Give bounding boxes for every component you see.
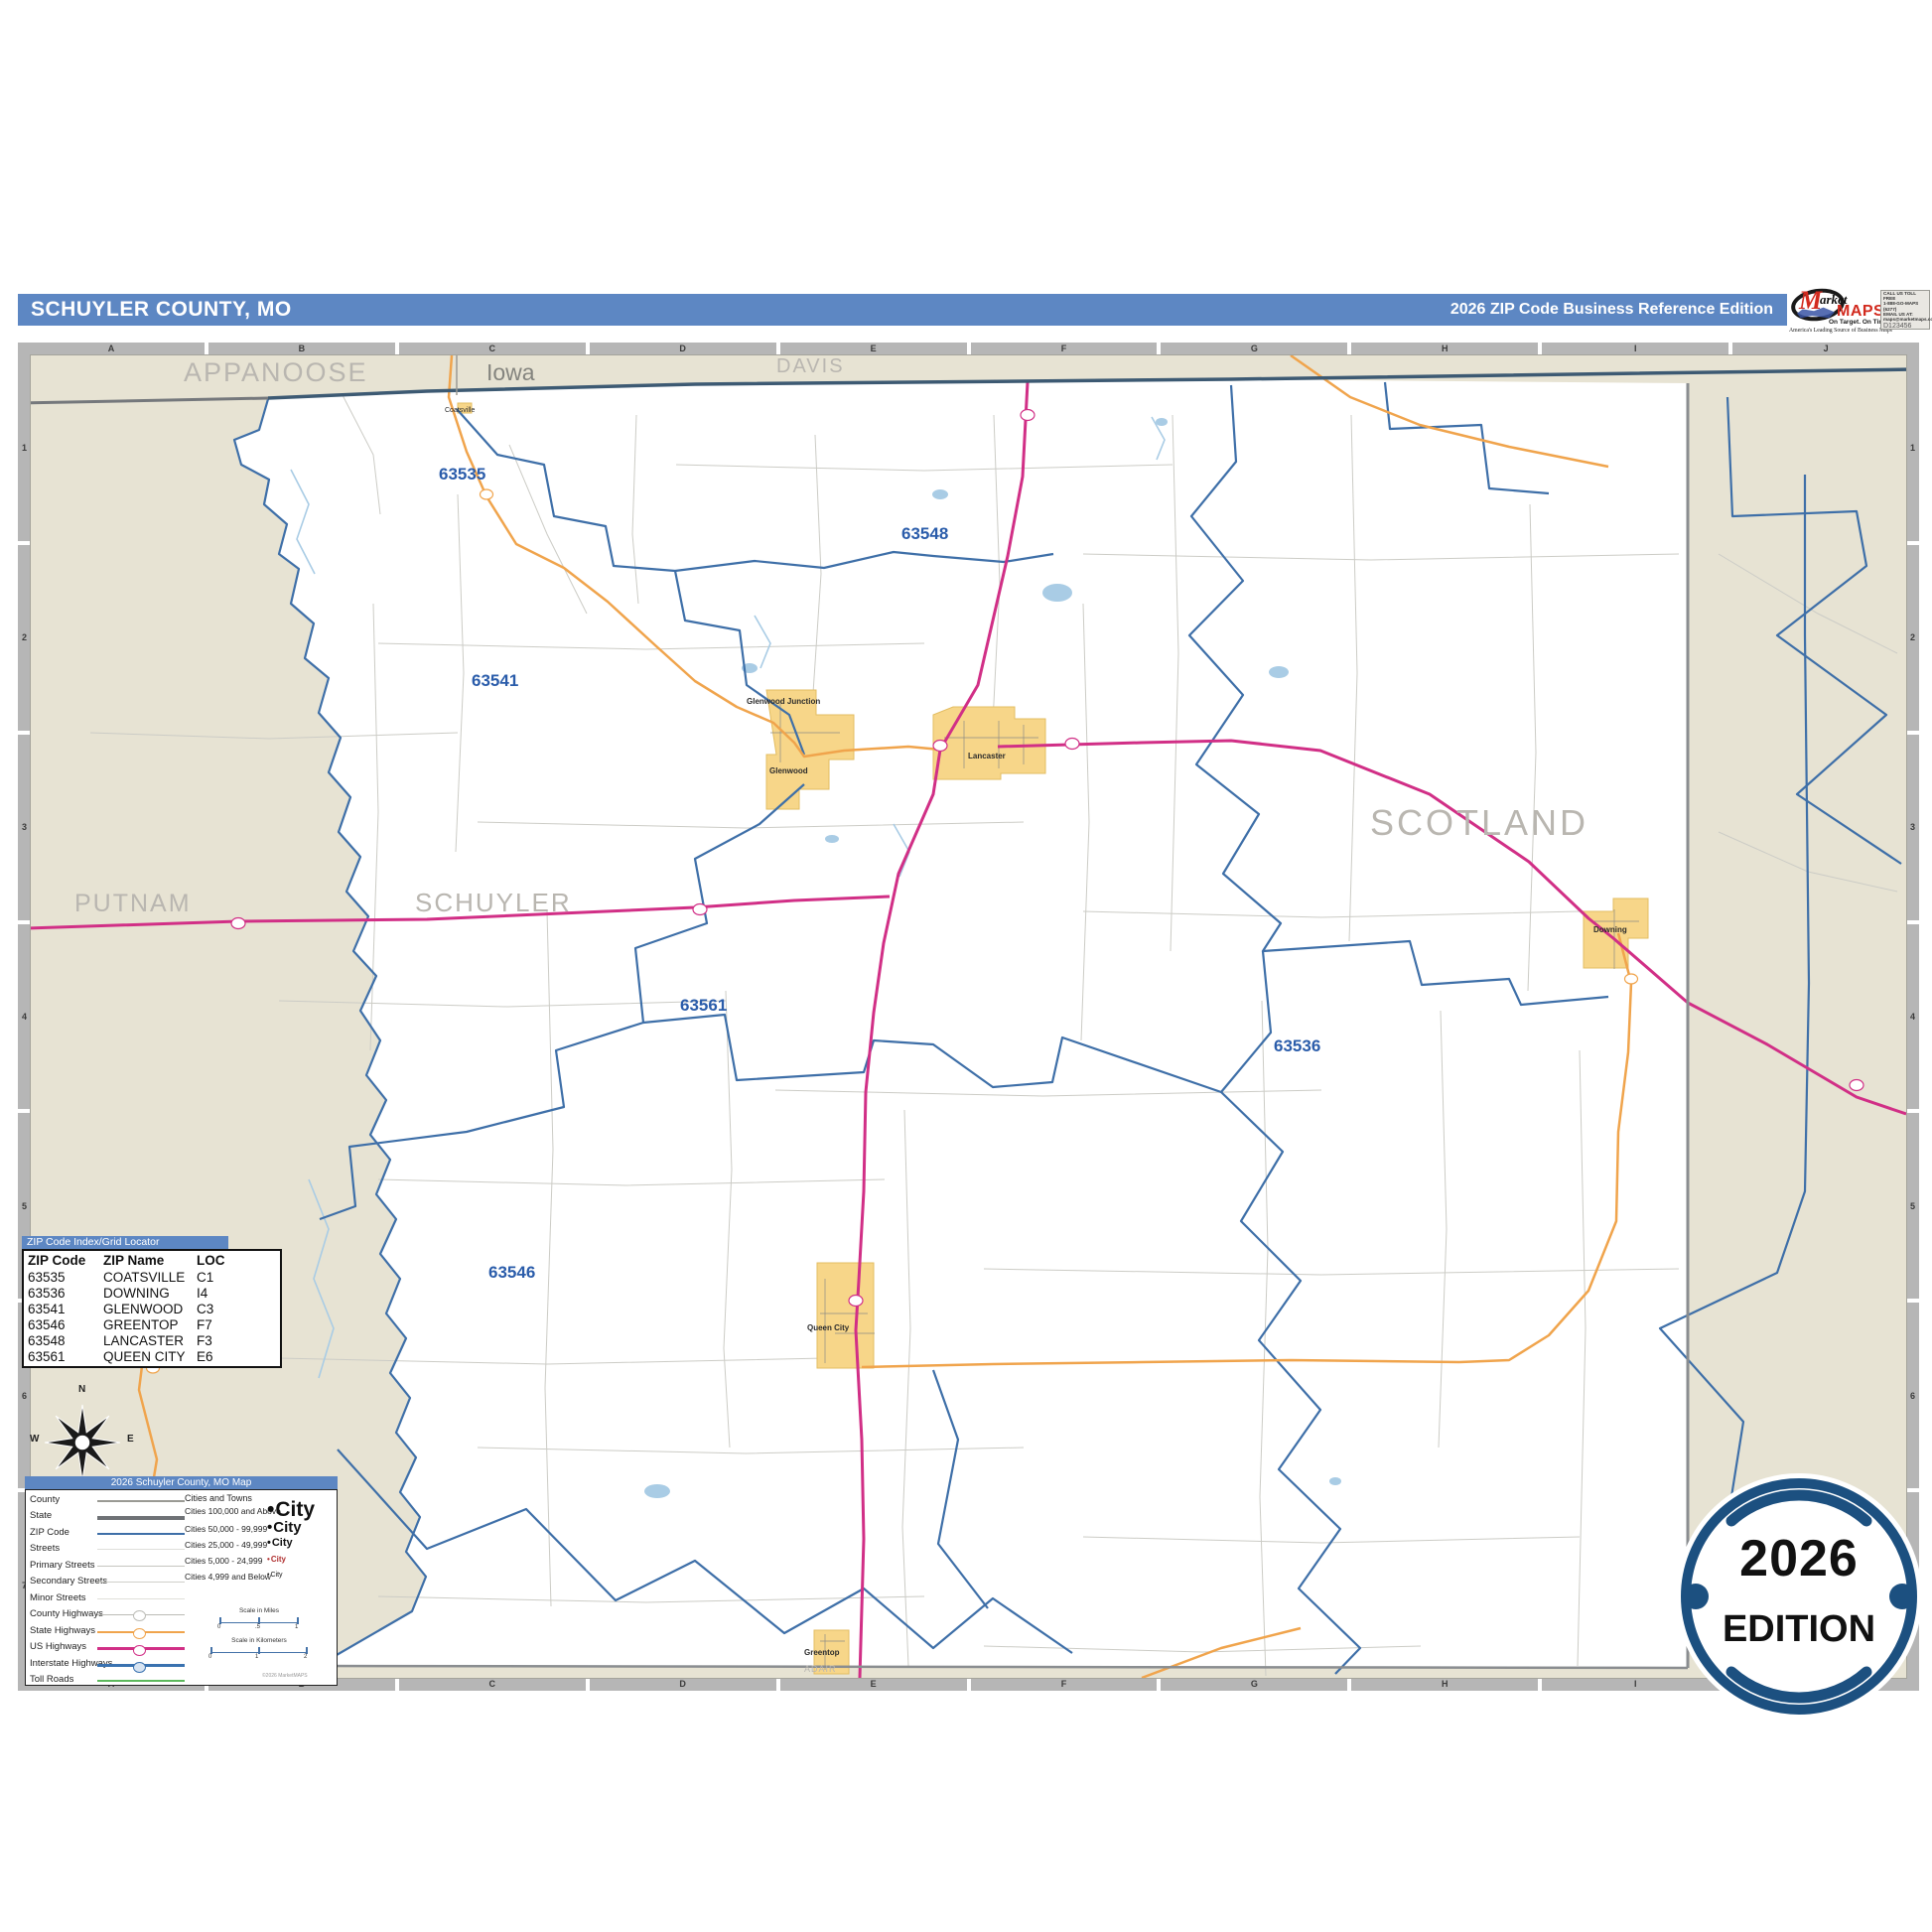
compass-e: E	[127, 1434, 134, 1445]
grid-col: E	[780, 1678, 967, 1691]
edition-badge: 2026 EDITION	[1676, 1473, 1922, 1720]
zip-index-body: ZIP Code ZIP Name LOC 63535COATSVILLEC1 …	[22, 1249, 282, 1368]
edition-label: 2026 ZIP Code Business Reference Edition	[1450, 294, 1773, 326]
zip-label-63541: 63541	[472, 671, 518, 691]
table-row: 63561QUEEN CITYE6	[24, 1349, 280, 1365]
secondary-line-sample	[97, 1582, 185, 1583]
map-legend: 2026 Schuyler County, MO Map County Stat…	[25, 1476, 338, 1686]
city-class-sample: City	[267, 1572, 283, 1579]
city-label-queen-city: Queen City	[807, 1323, 849, 1332]
cities-header: Cities and Towns	[185, 1493, 252, 1503]
zip-label-63548: 63548	[901, 524, 948, 544]
grid-row: 2	[18, 545, 31, 731]
grid-col: J	[1732, 343, 1919, 355]
table-row: 63548LANCASTERF3	[24, 1333, 280, 1349]
contact-line: maps@marketmaps.com	[1881, 317, 1929, 322]
contact-line: 1-888-GO-MAPS (6277)	[1881, 301, 1929, 311]
legend-item-streets: Streets	[30, 1543, 60, 1554]
minor-line-sample	[97, 1598, 185, 1599]
legend-item-county: County	[30, 1494, 60, 1505]
legend-title: 2026 Schuyler County, MO Map	[25, 1476, 338, 1489]
zip-label-63536: 63536	[1274, 1036, 1320, 1056]
city-label-lancaster: Lancaster	[968, 752, 1006, 760]
zip-label-63546: 63546	[488, 1263, 535, 1283]
legend-body: County State ZIP Code Streets Primary St…	[25, 1489, 338, 1686]
grid-col: C	[399, 343, 586, 355]
zip-line-sample	[97, 1533, 185, 1535]
grid-col: F	[971, 343, 1158, 355]
us-hwy-shield-icon	[133, 1645, 146, 1656]
city-class-label: Cities 50,000 - 99,999	[185, 1524, 267, 1534]
grid-col: A	[18, 343, 205, 355]
legend-copyright: ©2026 MarketMAPS	[262, 1673, 308, 1679]
compass-n: N	[78, 1384, 85, 1395]
legend-item-primary: Primary Streets	[30, 1560, 94, 1571]
city-class-label: Cities 5,000 - 24,999	[185, 1556, 262, 1566]
county-label-adair: ADAIR	[804, 1664, 837, 1674]
badge-ring-icon	[1676, 1473, 1922, 1720]
state-label-iowa: Iowa	[486, 359, 535, 386]
legend-item-minor: Minor Streets	[30, 1592, 86, 1603]
county-label-schuyler: SCHUYLER	[415, 888, 572, 918]
grid-row: 3	[18, 735, 31, 920]
zip-index-table: ZIP Code Index/Grid Locator ZIP Code ZIP…	[22, 1236, 280, 1368]
grid-ruler-top: ABCDEFGHIJ	[18, 343, 1919, 355]
interstate-shield-icon	[133, 1662, 146, 1673]
grid-col: B	[208, 343, 395, 355]
page-title: SCHUYLER COUNTY, MO	[31, 294, 292, 326]
city-label-greentop: Greentop	[804, 1648, 840, 1657]
grid-row: 1	[18, 355, 31, 541]
grid-col: G	[1161, 1678, 1347, 1691]
legend-item-secondary: Secondary Streets	[30, 1576, 107, 1587]
map-poster: SCHUYLER COUNTY, MO 2026 ZIP Code Busine…	[0, 0, 1932, 1932]
logo-subtitle: America's Leading Source of Business Map…	[1789, 328, 1892, 334]
grid-row: 5	[1906, 1113, 1919, 1299]
compass-w: W	[30, 1434, 39, 1445]
scale-km-bar: 0 1 2	[210, 1647, 308, 1653]
primary-line-sample	[97, 1566, 185, 1567]
grid-row: 4	[18, 924, 31, 1110]
grid-col: E	[780, 343, 967, 355]
zip-label-63535: 63535	[439, 465, 485, 484]
grid-col: H	[1351, 343, 1538, 355]
grid-row: 2	[1906, 545, 1919, 731]
legend-item-county-hwy: County Highways	[30, 1608, 103, 1619]
state-hwy-sample	[97, 1631, 185, 1633]
header-bar: SCHUYLER COUNTY, MO 2026 ZIP Code Busine…	[18, 294, 1787, 326]
legend-item-us-hwy: US Highways	[30, 1641, 86, 1652]
city-class-sample: City	[267, 1555, 286, 1564]
legend-item-zip: ZIP Code	[30, 1527, 69, 1538]
county-label-appanoose: APPANOOSE	[184, 357, 368, 388]
marketmaps-logo: M arket MAPS On Target. On Time. America…	[1789, 286, 1929, 336]
county-line-sample	[97, 1500, 185, 1502]
scale-miles-title: Scale in Miles	[216, 1607, 302, 1614]
table-row: 63541GLENWOODC3	[24, 1302, 280, 1317]
city-class-sample: City	[267, 1519, 302, 1536]
table-row: 63535COATSVILLEC1	[24, 1270, 280, 1286]
grid-row: 4	[1906, 924, 1919, 1110]
col-loc: LOC	[197, 1253, 225, 1268]
city-class-label: Cities 25,000 - 49,999	[185, 1540, 267, 1550]
state-line-sample	[97, 1516, 185, 1520]
county-label-putnam: PUTNAM	[74, 890, 192, 918]
zip-index-header: ZIP Code Index/Grid Locator	[22, 1236, 228, 1249]
grid-row: 6	[1906, 1303, 1919, 1488]
zip-label-63561: 63561	[680, 996, 727, 1016]
us-hwy-sample	[97, 1647, 185, 1650]
col-zip-code: ZIP Code	[28, 1253, 85, 1268]
grid-col: I	[1542, 343, 1728, 355]
table-header-row: ZIP Code ZIP Name LOC	[24, 1253, 280, 1269]
grid-col: H	[1351, 1678, 1538, 1691]
grid-col: D	[590, 1678, 776, 1691]
toll-line-sample	[97, 1680, 185, 1682]
city-label-glenwood: Glenwood	[769, 766, 808, 775]
grid-col: G	[1161, 343, 1347, 355]
streets-line-sample	[97, 1549, 185, 1550]
county-hwy-sample	[97, 1614, 185, 1615]
contact-line: CALL US TOLL FREE	[1881, 291, 1929, 301]
legend-item-state: State	[30, 1510, 52, 1521]
legend-item-toll: Toll Roads	[30, 1674, 73, 1685]
badge-year: 2026	[1676, 1529, 1922, 1588]
table-row: 63536DOWNINGI4	[24, 1286, 280, 1302]
county-label-scotland: SCOTLAND	[1370, 802, 1588, 844]
grid-row: 1	[1906, 355, 1919, 541]
grid-col: F	[971, 1678, 1158, 1691]
col-zip-name: ZIP Name	[103, 1253, 164, 1268]
grid-col: C	[399, 1678, 586, 1691]
badge-edition: EDITION	[1676, 1608, 1922, 1651]
county-label-davis: DAVIS	[776, 355, 845, 378]
city-label-glenwood-junction: Glenwood Junction	[747, 697, 820, 706]
city-label-coatsville: Coatsville	[445, 407, 475, 414]
city-label-downing: Downing	[1593, 925, 1627, 934]
table-row: 63546GREENTOPF7	[24, 1317, 280, 1333]
grid-col: D	[590, 343, 776, 355]
interstate-sample	[97, 1664, 185, 1667]
scale-km-title: Scale in Kilometers	[207, 1637, 311, 1644]
contact-box: CALL US TOLL FREE 1-888-GO-MAPS (6277) E…	[1880, 290, 1930, 330]
state-hwy-shield-icon	[133, 1628, 146, 1639]
grid-row: 3	[1906, 735, 1919, 920]
county-hwy-shield-icon	[133, 1610, 146, 1621]
scale-miles-bar: 0 .5 1	[219, 1617, 299, 1623]
product-code: D123456	[1881, 322, 1929, 329]
legend-item-state-hwy: State Highways	[30, 1625, 95, 1636]
city-class-label: Cities 4,999 and Below	[185, 1572, 271, 1582]
city-class-sample: City	[267, 1537, 293, 1549]
